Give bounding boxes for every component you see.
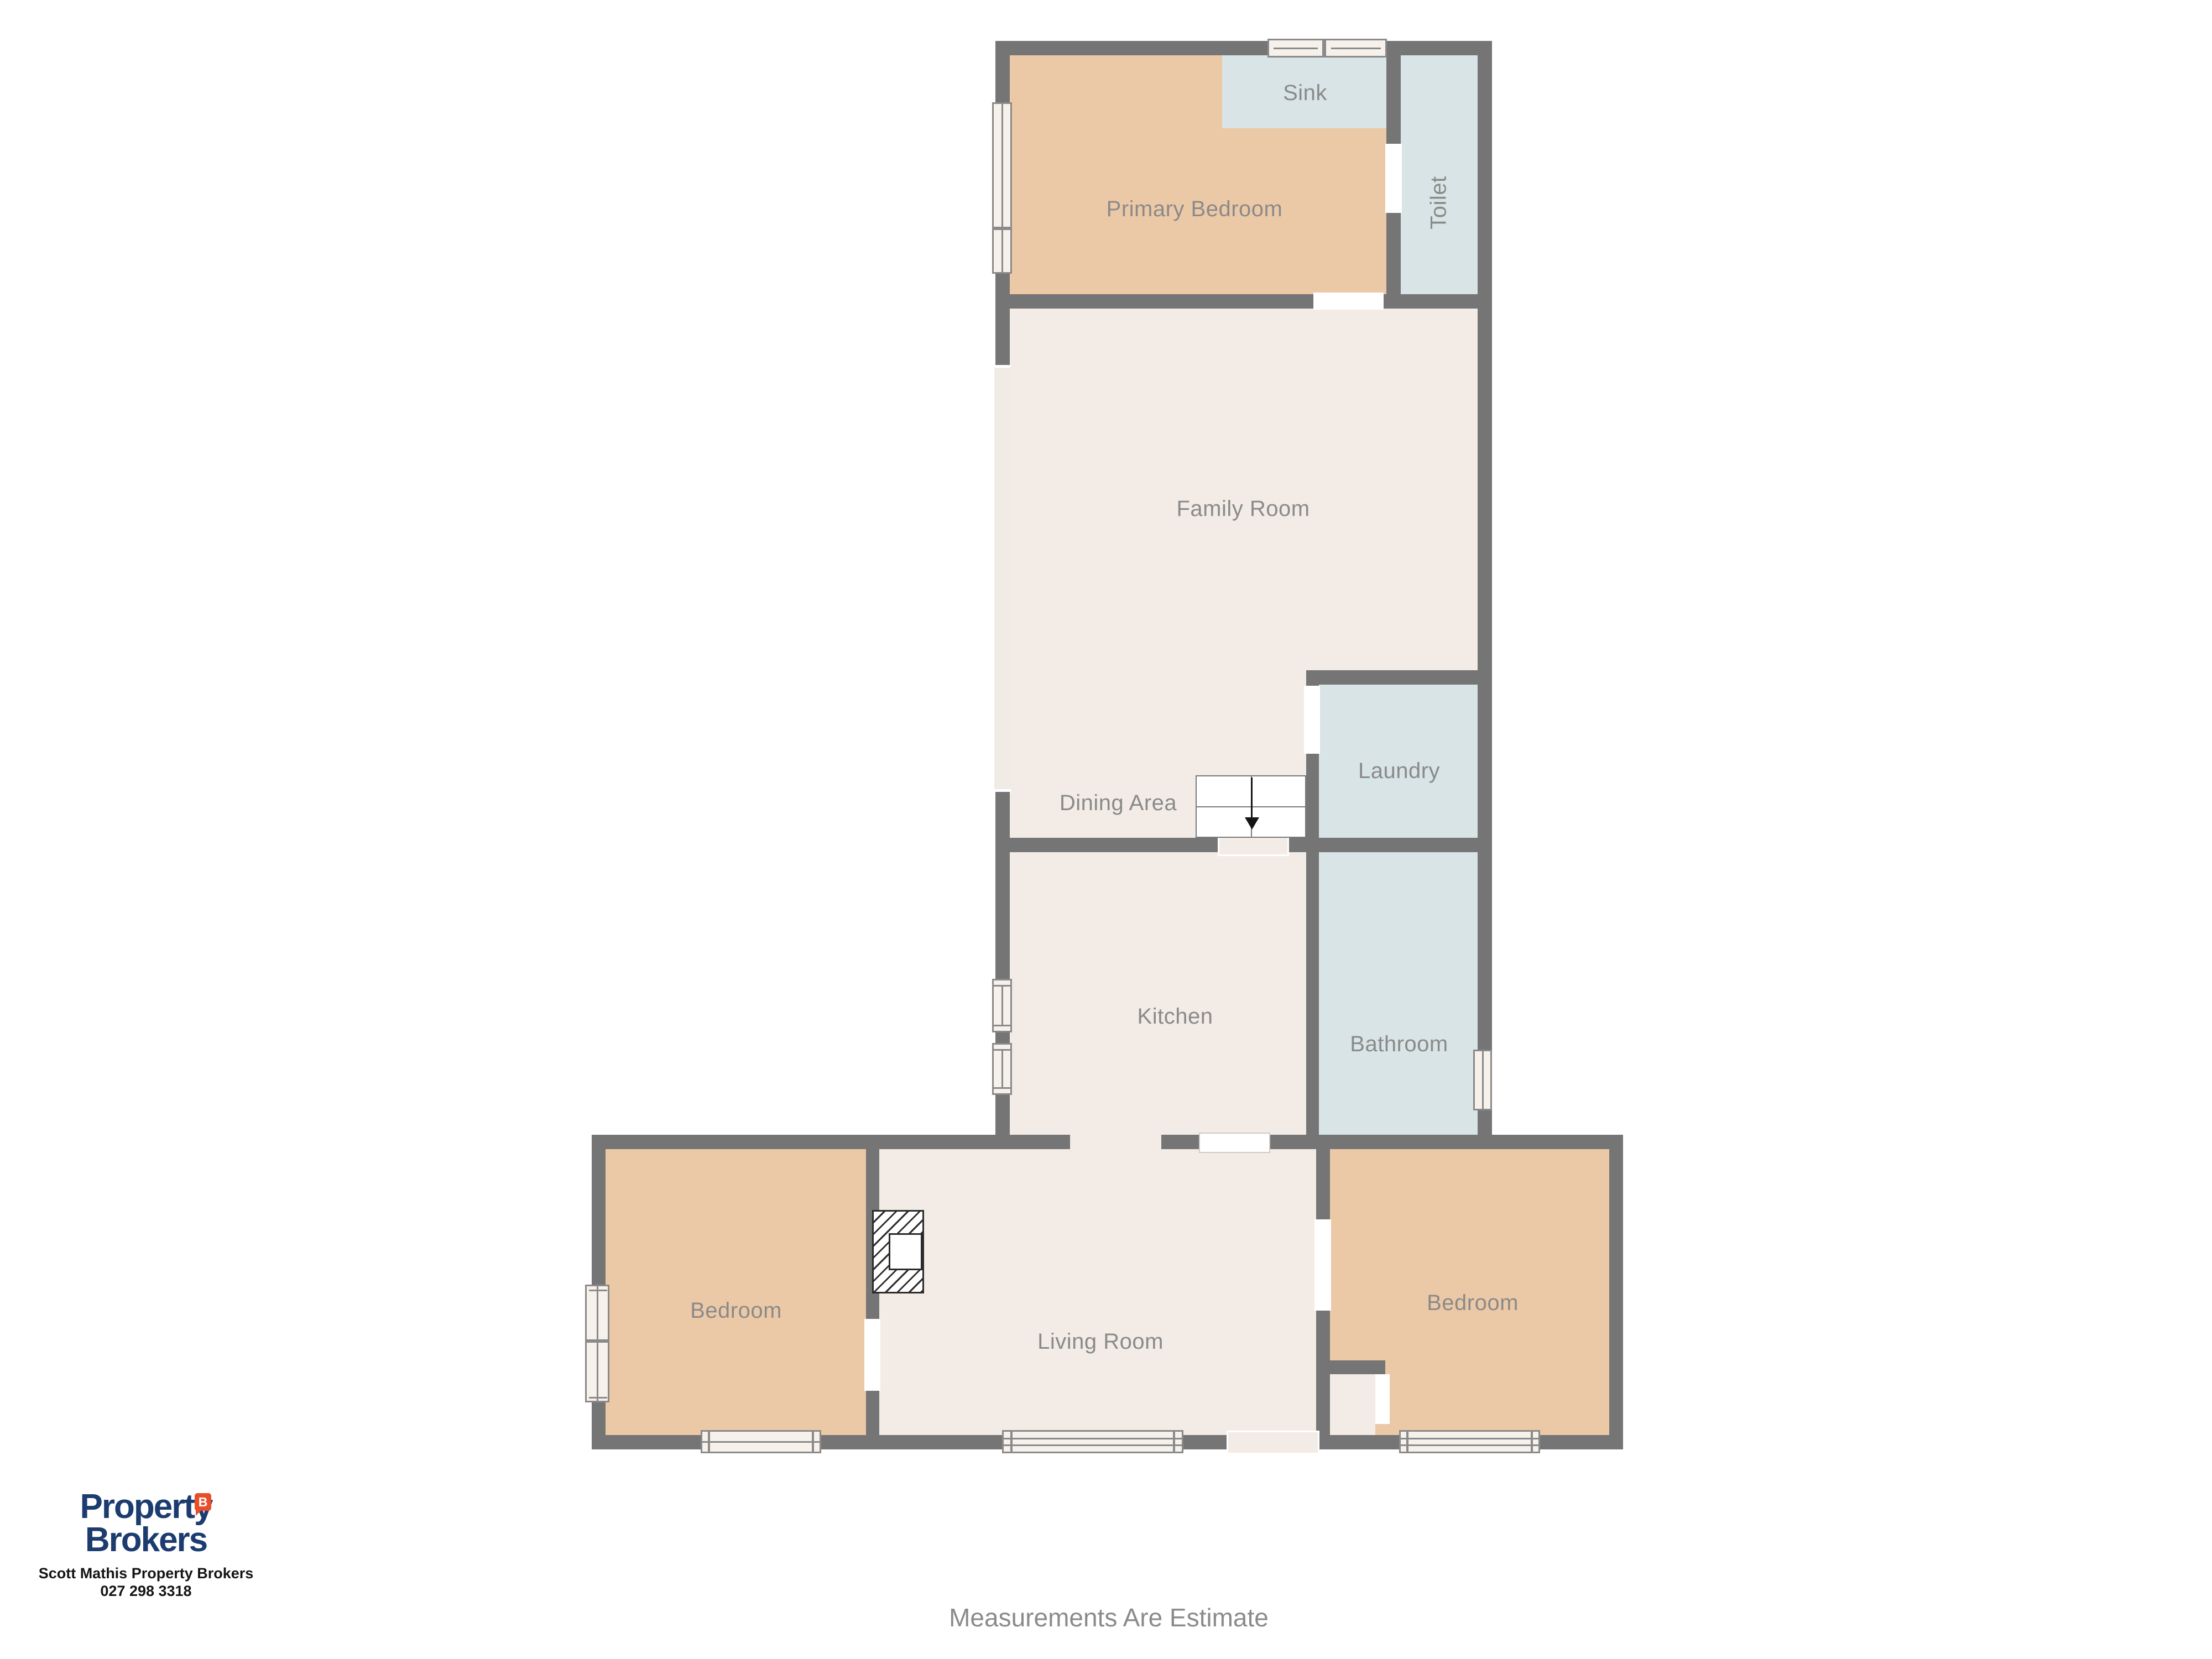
- door-bedroom-left: [864, 1319, 880, 1391]
- wall-laundry-top: [1306, 670, 1492, 685]
- wall-kitchen-bathroom: [1306, 852, 1319, 1149]
- wall-bottomblock-top-stub: [1161, 1135, 1200, 1149]
- door-primary-bedroom: [1313, 293, 1384, 310]
- door-laundry: [1304, 686, 1320, 754]
- label-sink: Sink: [1222, 81, 1388, 106]
- window-bathroom-right: [1473, 1050, 1492, 1110]
- window-bedroomleft-wall-b: [585, 1341, 609, 1402]
- wall-closet-top: [1330, 1360, 1385, 1374]
- disclaimer-text: Measurements Are Estimate: [888, 1603, 1330, 1632]
- label-bedroom-left: Bedroom: [625, 1298, 847, 1323]
- window-kitchen-left-a: [992, 979, 1012, 1032]
- wall-bottomblock-right: [1609, 1135, 1623, 1449]
- wall-bottomblock-top-right: [1268, 1135, 1623, 1149]
- door-back: [1227, 1431, 1319, 1454]
- label-toilet: Toilet: [1427, 148, 1452, 258]
- window-bedroomleft-wall-a: [585, 1285, 609, 1341]
- room-kitchen: [1009, 852, 1306, 1135]
- stairs-arrow: [1251, 778, 1253, 818]
- wall-bottomblock-top-left: [592, 1135, 1070, 1149]
- label-bedroom-right: Bedroom: [1362, 1291, 1583, 1316]
- logo-brokers: Brokers: [35, 1524, 257, 1557]
- wall-under-primary: [995, 294, 1492, 309]
- room-living: [879, 1149, 1316, 1435]
- window-primary-bedroom-left: [992, 102, 1012, 274]
- window-bottom-bedroomright: [1399, 1430, 1540, 1453]
- label-family-room: Family Room: [1077, 497, 1409, 521]
- window-top-double: [1267, 39, 1387, 58]
- window-family-room-strip: [994, 365, 1011, 792]
- window-kitchen-left-b: [992, 1043, 1012, 1095]
- label-bathroom: Bathroom: [1288, 1032, 1510, 1057]
- door-kitchen-living: [1199, 1133, 1270, 1153]
- window-bottom-living: [1002, 1430, 1183, 1453]
- logo-property: Property: [35, 1490, 257, 1524]
- brand-logo-block: Property Brokers Scott Mathis Property B…: [35, 1490, 257, 1600]
- room-bedroom-left: [606, 1149, 866, 1435]
- room-family: [1009, 309, 1478, 670]
- door-closet: [1375, 1374, 1390, 1424]
- window-bottom-bedroomleft: [701, 1430, 821, 1453]
- wall-right-column: [1478, 41, 1492, 1149]
- logo-speech-bubble-icon: B: [195, 1493, 211, 1511]
- agent-name: Scott Mathis Property Brokers: [35, 1564, 257, 1582]
- agent-phone: 027 298 3318: [35, 1582, 257, 1600]
- label-living-room: Living Room: [990, 1329, 1211, 1354]
- label-dining-area: Dining Area: [1008, 791, 1229, 816]
- room-bathroom: [1319, 852, 1478, 1135]
- door-toilet: [1385, 144, 1402, 213]
- floorplan-page: Sink Toilet Primary Bedroom Family Room …: [0, 0, 2212, 1659]
- label-primary-bedroom: Primary Bedroom: [1029, 197, 1360, 222]
- label-kitchen: Kitchen: [1065, 1004, 1286, 1029]
- opening-kitchen-living: [1070, 1135, 1161, 1149]
- wall-top: [995, 41, 1492, 55]
- door-bedroom-right: [1314, 1219, 1331, 1311]
- room-closet: [1330, 1374, 1375, 1435]
- label-laundry: Laundry: [1319, 759, 1479, 784]
- fireplace-icon: [872, 1210, 924, 1293]
